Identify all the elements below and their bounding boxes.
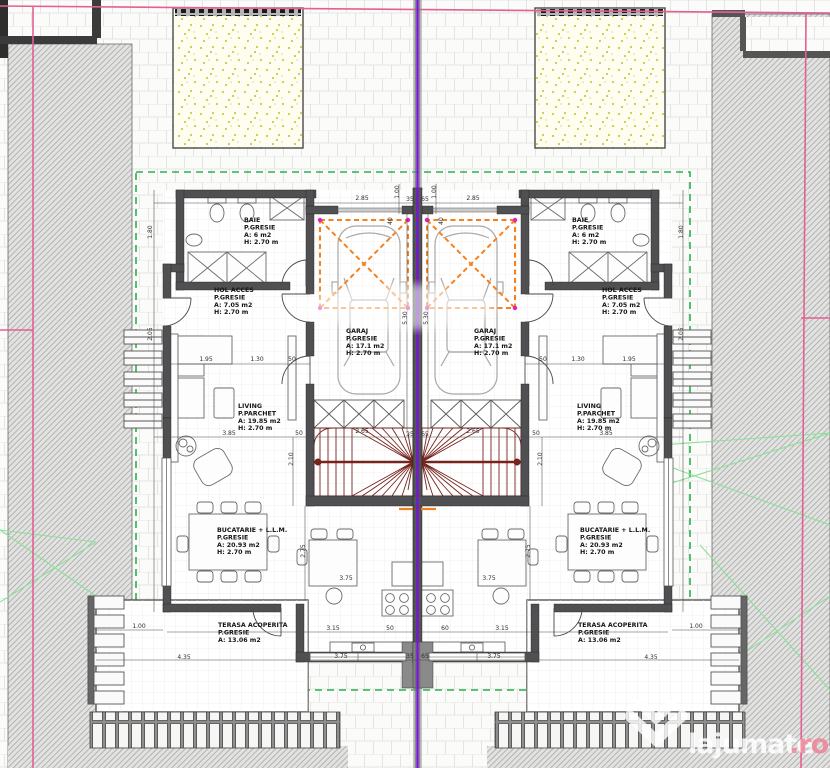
garage-storage [314, 400, 404, 428]
sink [352, 643, 374, 652]
dimension-label: 5.30 [402, 311, 409, 325]
dimension-label: 5.30 [423, 311, 430, 325]
dimension-label: 3.75 [339, 575, 353, 582]
dimension-label: 3.75 [487, 653, 501, 660]
dimension-label: 3.75 [334, 653, 348, 660]
garage-door [338, 208, 402, 212]
dimension-label: 2.10 [537, 452, 544, 466]
dimension-label: 40 [387, 217, 394, 225]
dimension-label: 40 [438, 217, 445, 225]
dimension-label: 50 [539, 356, 547, 363]
floor-plan-canvas: 2.852.851.001.00404035651.802.051.802.05… [0, 0, 830, 768]
dimension-label: 65 [421, 653, 429, 660]
stool [326, 588, 342, 604]
dimension-label: 1.00 [689, 623, 703, 630]
faded-watermark [305, 284, 495, 330]
dimension-label: 2.65 [355, 428, 369, 435]
hedge-fence-left [175, 9, 301, 16]
dimension-label: 1.80 [678, 225, 685, 239]
coffee-table [214, 388, 234, 418]
dimension-label: 2.85 [466, 195, 480, 202]
deck-slats [90, 712, 340, 748]
dimension-label: 60 [441, 625, 449, 632]
washbasin [186, 234, 202, 246]
dimension-label: 1.30 [250, 356, 264, 363]
room-label: HOL ACCESP.GRESIEA: 7.05 m2H: 2.70 m [214, 287, 254, 316]
dimension-label: 50 [532, 430, 540, 437]
room-label: HOL ACCESP.GRESIEA: 7.05 m2H: 2.70 m [602, 287, 642, 316]
dimension-label: 35 [406, 196, 414, 203]
dimension-label: 2.75 [300, 544, 307, 558]
dimension-label: 1.95 [622, 356, 636, 363]
dimension-label: 2.05 [678, 327, 685, 341]
dimension-label: 2.05 [147, 327, 154, 341]
dimension-label: 3.15 [495, 625, 509, 632]
dimension-label: 50 [386, 625, 394, 632]
dimension-label: 2.85 [355, 195, 369, 202]
dimension-label: 1.00 [132, 623, 146, 630]
dimension-label: 3.15 [326, 625, 340, 632]
cooktop [382, 590, 414, 616]
watermark-tld: .ro [789, 729, 829, 760]
dimension-label: 1.80 [147, 225, 154, 239]
dimension-label: 35 [406, 653, 414, 660]
dimension-label: 2.10 [288, 452, 295, 466]
dimension-label: 3.85 [222, 430, 236, 437]
dimension-label: 65 [421, 431, 429, 438]
dimension-label: 65 [421, 196, 429, 203]
tv-cabinet [288, 336, 296, 420]
dimension-label: 35 [406, 431, 414, 438]
fridge [392, 562, 414, 586]
dimension-label: 4.35 [644, 654, 658, 661]
dimension-label: 2.75 [525, 544, 532, 558]
dimension-label: 4.35 [177, 654, 191, 661]
dimension-label: 1.30 [571, 356, 585, 363]
dimension-label: 2.65 [466, 428, 480, 435]
dimension-label: 1.00 [431, 185, 438, 199]
dimension-label: 1.95 [199, 356, 213, 363]
dimension-label: 50 [288, 356, 296, 363]
floor-plan-screenshot: 2.852.851.001.00404035651.802.051.802.05… [0, 0, 830, 768]
dimension-label: 50 [295, 430, 303, 437]
dimension-label: 1.00 [394, 185, 401, 199]
dimension-label: 3.75 [482, 575, 496, 582]
